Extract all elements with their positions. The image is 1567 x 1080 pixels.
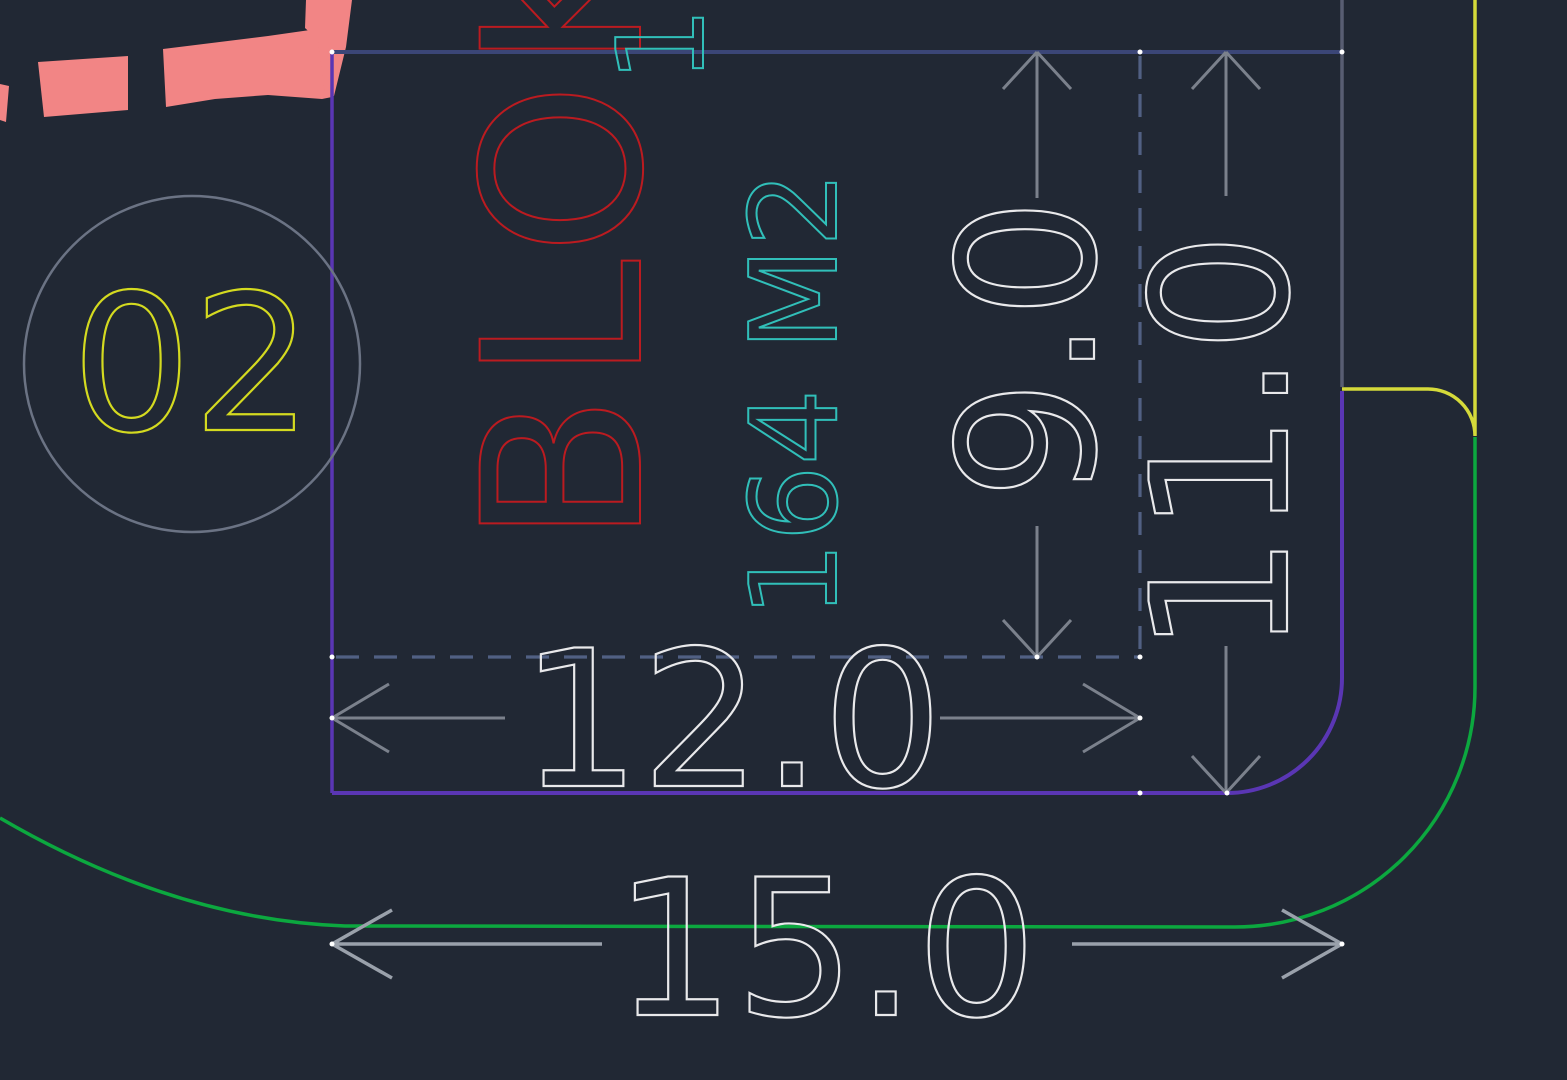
vertex-dot: [330, 716, 335, 721]
vertex-dot: [1138, 791, 1143, 796]
vertex-dot: [330, 942, 335, 947]
dimension-9-text[interactable]: 9.0: [918, 198, 1139, 500]
cad-viewport[interactable]: 9.0 11.0 12.0 15.0 02 BLOK 164 M2 1: [0, 0, 1567, 1080]
vertex-dot: [330, 50, 335, 55]
vertex-dot: [1138, 655, 1143, 660]
dimension-11-text[interactable]: 11.0: [1111, 232, 1332, 655]
vertex-dot: [330, 655, 335, 660]
vertex-dot: [1035, 655, 1040, 660]
text-fragment-cyan[interactable]: 1: [593, 7, 732, 83]
road-marking-dash[interactable]: [38, 56, 128, 117]
vertex-dot: [1225, 791, 1230, 796]
vertex-dot: [1138, 50, 1143, 55]
vertex-dot: [1340, 942, 1345, 947]
dimension-15-text[interactable]: 15.0: [614, 839, 1037, 1060]
dimension-12-text[interactable]: 12.0: [520, 610, 943, 831]
vertex-dot: [1340, 50, 1345, 55]
area-label-text[interactable]: 164 M2: [726, 171, 865, 618]
plot-number-text[interactable]: 02: [71, 254, 313, 475]
vertex-dot: [1138, 716, 1143, 721]
